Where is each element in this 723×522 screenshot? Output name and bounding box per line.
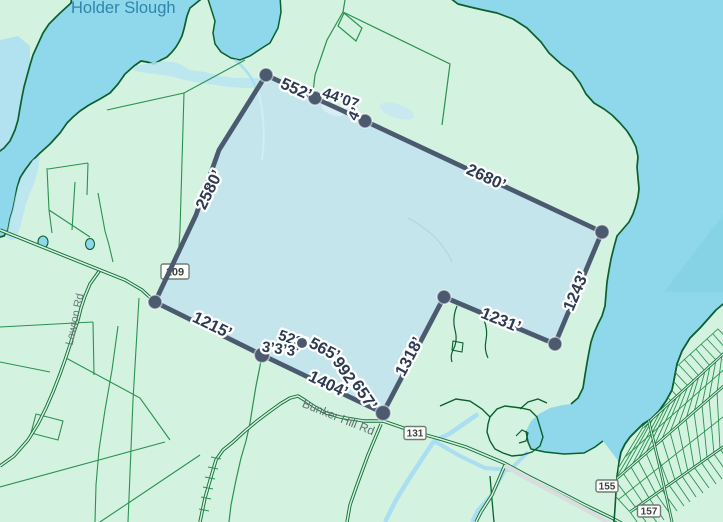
svg-text:157: 157 xyxy=(641,507,658,518)
svg-text:131: 131 xyxy=(407,429,424,440)
svg-text:155: 155 xyxy=(599,482,616,493)
svg-text:Holder Slough: Holder Slough xyxy=(71,0,176,17)
